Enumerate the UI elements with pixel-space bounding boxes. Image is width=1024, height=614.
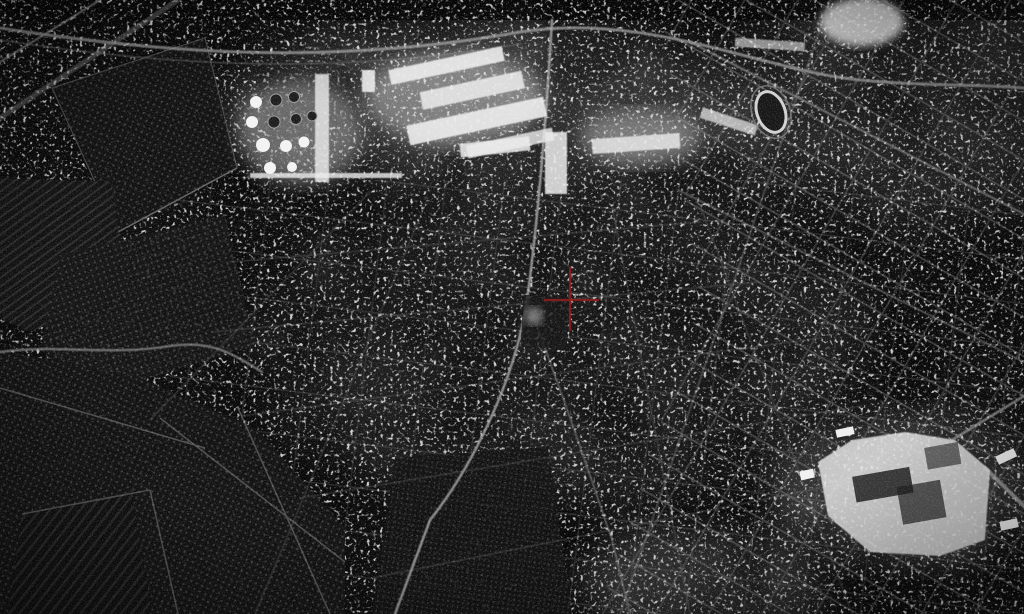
vignette (0, 0, 1024, 614)
satellite-photo (0, 0, 1024, 614)
satellite-photo-canvas (0, 0, 1024, 614)
